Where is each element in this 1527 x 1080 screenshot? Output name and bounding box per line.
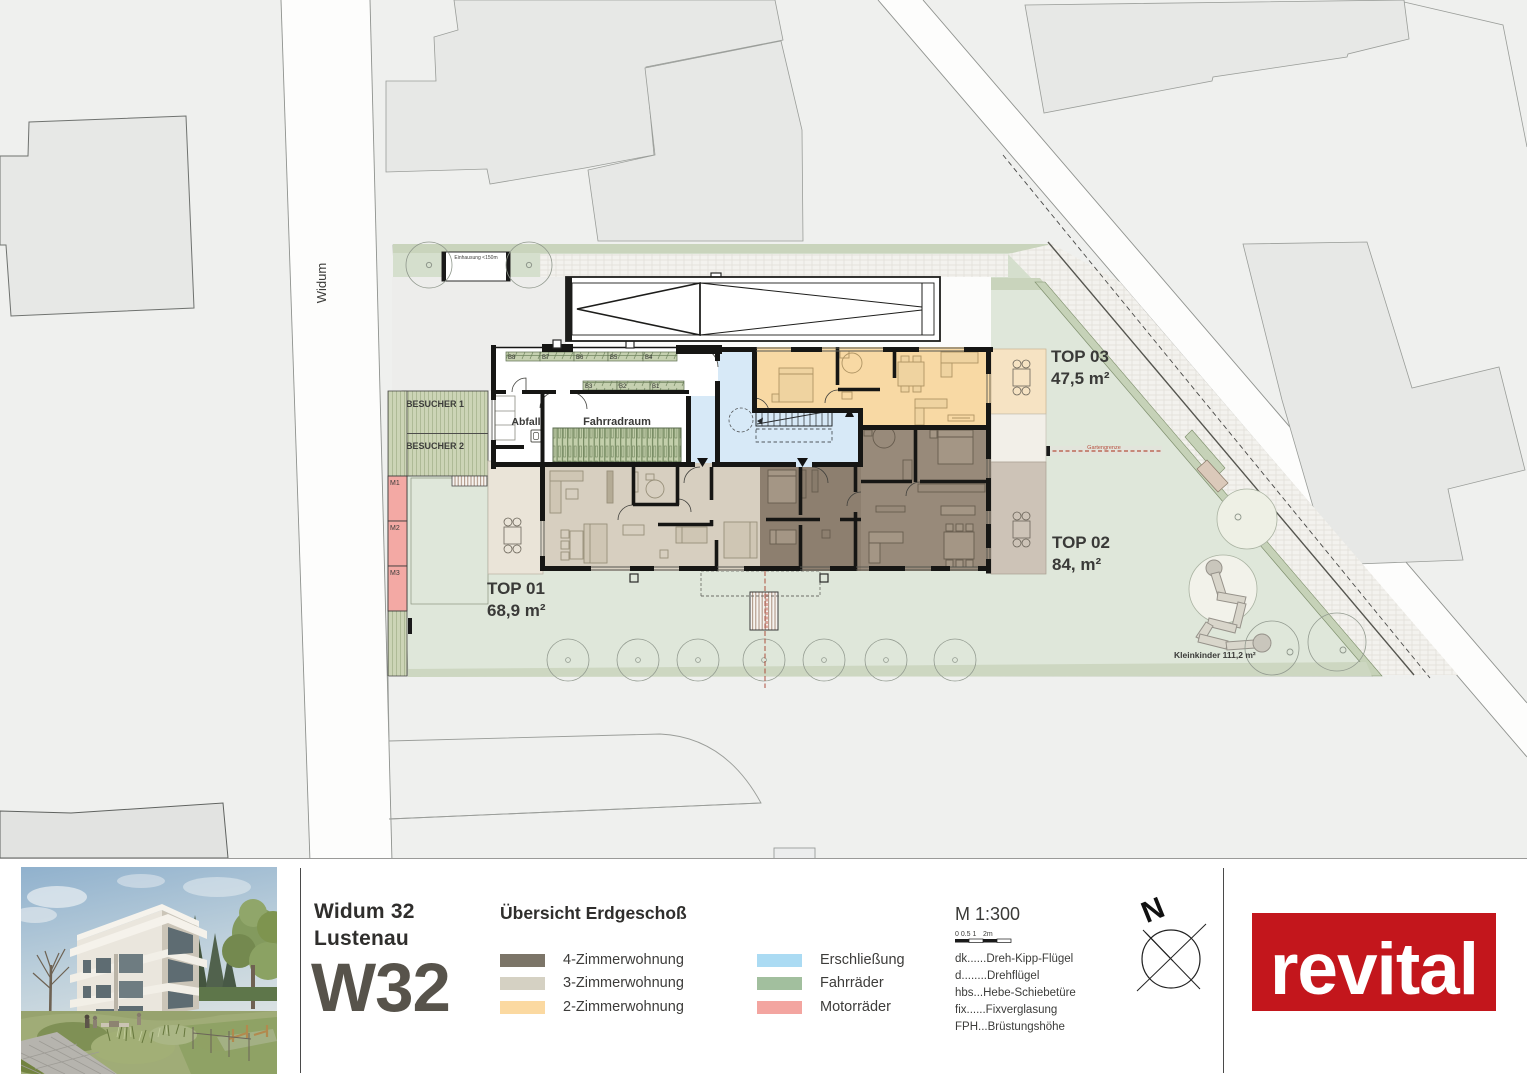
svg-text:M3: M3 — [390, 570, 400, 577]
svg-text:N: N — [1137, 891, 1169, 930]
svg-text:B5: B5 — [610, 355, 618, 361]
svg-text:B3: B3 — [585, 384, 593, 390]
svg-text:B7: B7 — [542, 355, 550, 361]
svg-text:B4: B4 — [645, 355, 653, 361]
svg-text:BESUCHER 1: BESUCHER 1 — [406, 399, 464, 409]
svg-text:TOP 03: TOP 03 — [1051, 347, 1109, 366]
svg-text:B1: B1 — [652, 384, 660, 390]
svg-text:2m: 2m — [983, 931, 993, 938]
svg-text:TOP 02: TOP 02 — [1052, 533, 1110, 552]
svg-text:47,5 m²: 47,5 m² — [1051, 369, 1110, 388]
svg-text:68,9 m²: 68,9 m² — [487, 601, 546, 620]
svg-text:Fahrradraum: Fahrradraum — [583, 416, 651, 428]
svg-text:M1: M1 — [390, 480, 400, 487]
svg-text:Widum: Widum — [314, 263, 329, 303]
svg-text:B6: B6 — [576, 355, 584, 361]
svg-text:84, m²: 84, m² — [1052, 555, 1101, 574]
svg-text:M2: M2 — [390, 525, 400, 532]
svg-text:B2: B2 — [619, 384, 627, 390]
svg-text:TOP 01: TOP 01 — [487, 579, 545, 598]
svg-text:0 0.5 1: 0 0.5 1 — [955, 931, 977, 938]
svg-text:Abfall: Abfall — [511, 416, 540, 428]
svg-text:Kleinkinder 111,2 m²: Kleinkinder 111,2 m² — [1174, 650, 1256, 660]
svg-text:B8: B8 — [508, 355, 516, 361]
svg-text:BESUCHER 2: BESUCHER 2 — [406, 441, 464, 451]
svg-text:Einhausung <150m: Einhausung <150m — [454, 255, 497, 261]
svg-text:Gartengrenze: Gartengrenze — [1087, 445, 1121, 451]
